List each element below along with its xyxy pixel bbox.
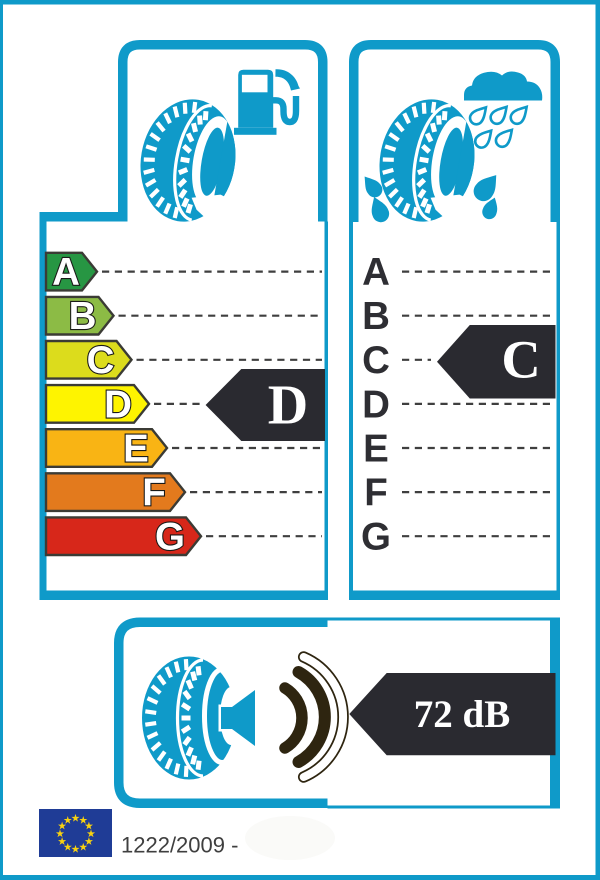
svg-text:G: G (155, 516, 185, 559)
svg-text:A: A (52, 251, 80, 294)
svg-text:D: D (104, 383, 132, 426)
svg-text:C: C (87, 339, 115, 382)
svg-text:D: D (362, 383, 390, 426)
svg-text:B: B (362, 295, 390, 338)
svg-text:72 dB: 72 dB (414, 693, 510, 736)
svg-text:G: G (361, 516, 391, 559)
svg-text:F: F (142, 472, 166, 515)
svg-text:C: C (501, 329, 540, 390)
svg-text:D: D (268, 375, 308, 437)
svg-text:1222/2009 -: 1222/2009 - (121, 833, 238, 858)
svg-text:E: E (363, 427, 389, 470)
svg-text:F: F (364, 472, 388, 515)
svg-text:B: B (69, 295, 97, 338)
svg-text:E: E (123, 427, 149, 470)
svg-text:C: C (362, 339, 390, 382)
svg-text:A: A (362, 251, 390, 294)
